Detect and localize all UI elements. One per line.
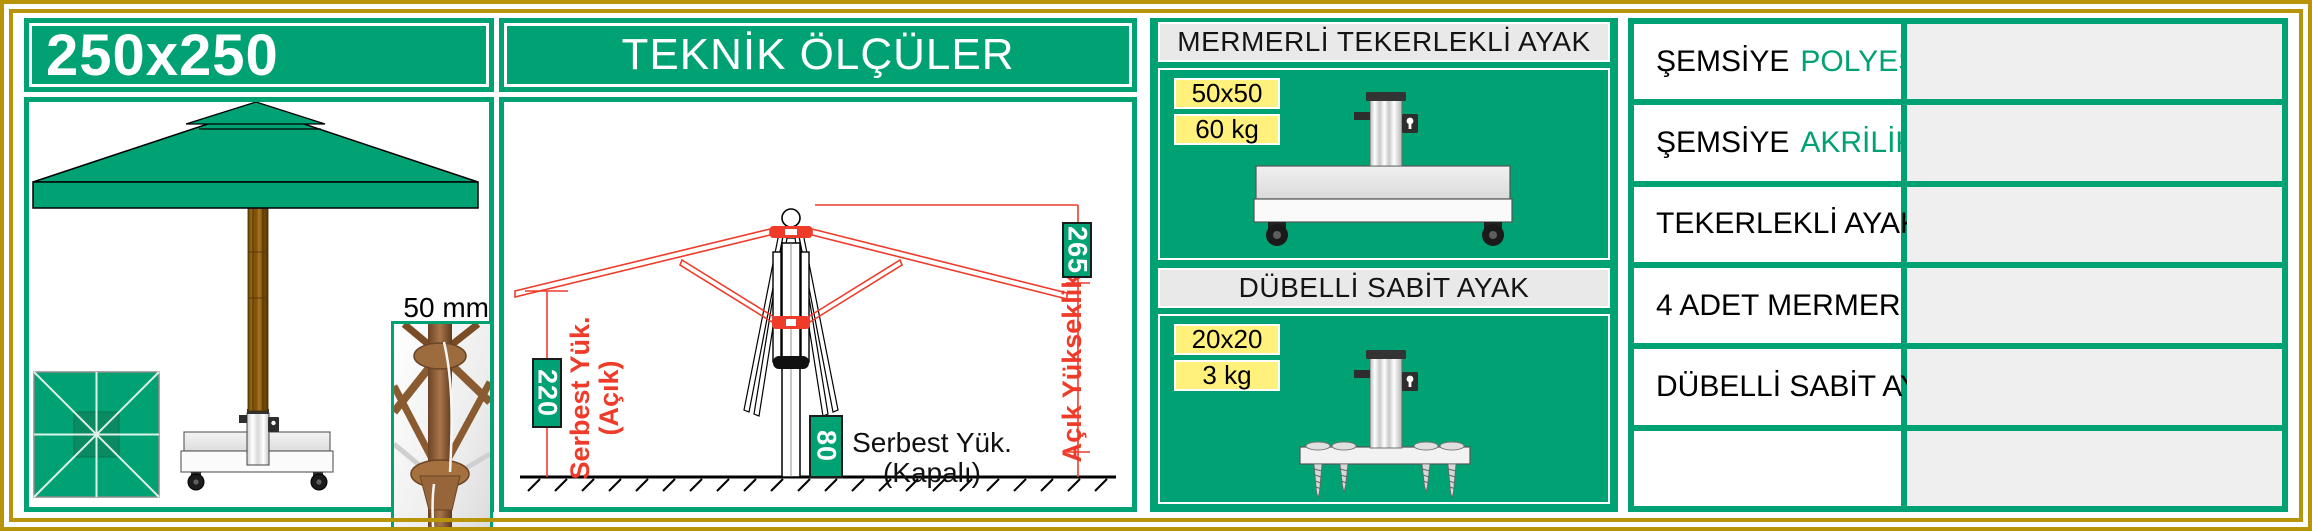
fixed-base-size: 20x20: [1174, 324, 1280, 355]
technical-panel: TEKNİK ÖLÇÜLER: [499, 18, 1137, 512]
table-row-value: [1907, 268, 2282, 343]
pole-detail-photo: [391, 321, 493, 531]
row-name: ŞEMSİYE: [1656, 126, 1789, 160]
free-open-label-line2: (Açık): [595, 313, 624, 483]
free-open-label: Serbest Yük. (Açık): [566, 313, 624, 483]
row-variant: AKRİLİK: [1800, 126, 1915, 160]
free-open-label-line1: Serbest Yük.: [566, 313, 595, 483]
table-row-value: [1907, 431, 2282, 506]
row-name: TEKERLEKLİ AYAK: [1656, 207, 1920, 241]
wheeled-base-header: MERMERLİ TEKERLEKLİ AYAK: [1158, 22, 1610, 62]
bases-panel: MERMERLİ TEKERLEKLİ AYAK: [1150, 18, 1618, 512]
table-row-label: DÜBELLİ SABİT AYAK: [1634, 349, 1901, 424]
fixed-base-weight: 3 kg: [1174, 360, 1280, 391]
wheeled-base-size: 50x50: [1174, 78, 1280, 109]
spec-sheet: 250x250: [0, 0, 2312, 531]
row-name: 4 ADET MERMER: [1656, 289, 1901, 323]
wheeled-base-weight: 60 kg: [1174, 114, 1280, 145]
table-row-label: TEKERLEKLİ AYAK: [1634, 187, 1901, 262]
fixed-base-body: 20x20 3 kg: [1158, 314, 1610, 504]
dim-free-open-box: 220: [532, 358, 562, 428]
hub-photo-illustration: [394, 324, 490, 531]
dim-open-height-box: 265: [1062, 222, 1092, 278]
dim-free-open-value: 220: [532, 369, 563, 417]
umbrella-top-view: [34, 372, 159, 497]
free-closed-label: Serbest Yük. (Kapalı): [832, 428, 1032, 488]
pole-diameter-label: 50 mm: [329, 292, 489, 324]
free-closed-label-line1: Serbest Yük.: [832, 428, 1032, 458]
row-name: ŞEMSİYE: [1656, 45, 1789, 79]
fixed-base-header: DÜBELLİ SABİT AYAK: [1158, 268, 1610, 308]
table-row-label: [1634, 431, 1901, 506]
table-row-value: [1907, 105, 2282, 180]
technical-header: TEKNİK ÖLÇÜLER: [499, 18, 1137, 92]
table-row-label: ŞEMSİYE POLYESTER: [1634, 24, 1901, 99]
free-closed-label-line2: (Kapalı): [832, 458, 1032, 488]
price-table: ŞEMSİYE POLYESTER ŞEMSİYE AKRİLİK TEKERL…: [1628, 18, 2288, 512]
technical-title: TEKNİK ÖLÇÜLER: [499, 18, 1137, 92]
dim-free-closed-value: 80: [811, 430, 842, 462]
table-row-value: [1907, 349, 2282, 424]
size-title: 250x250: [24, 18, 494, 92]
dim-open-height-value: 265: [1062, 226, 1093, 274]
wheeled-base-body: 50x50 60 kg: [1158, 68, 1610, 260]
size-panel-body: 50 mm: [24, 97, 494, 512]
table-row-label: ŞEMSİYE AKRİLİK: [1634, 105, 1901, 180]
size-panel-header: 250x250: [24, 18, 494, 92]
table-row-value: [1907, 187, 2282, 262]
dim-free-closed-box: 80: [809, 415, 843, 478]
table-row-value: [1907, 24, 2282, 99]
open-height-label: Açık Yükseklik: [1058, 258, 1088, 478]
size-panel: 250x250: [24, 18, 494, 512]
table-row-label: 4 ADET MERMER: [1634, 268, 1901, 343]
